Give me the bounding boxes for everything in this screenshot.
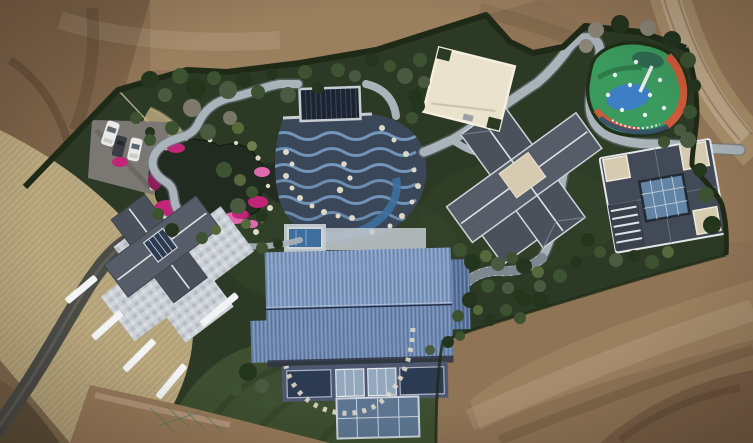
aerial-estate-photo: Aerial drone view of a landscaped villa … bbox=[0, 0, 753, 443]
photo-vignette bbox=[0, 0, 753, 443]
estate-illustration: Aerial drone view of a landscaped villa … bbox=[0, 0, 753, 443]
